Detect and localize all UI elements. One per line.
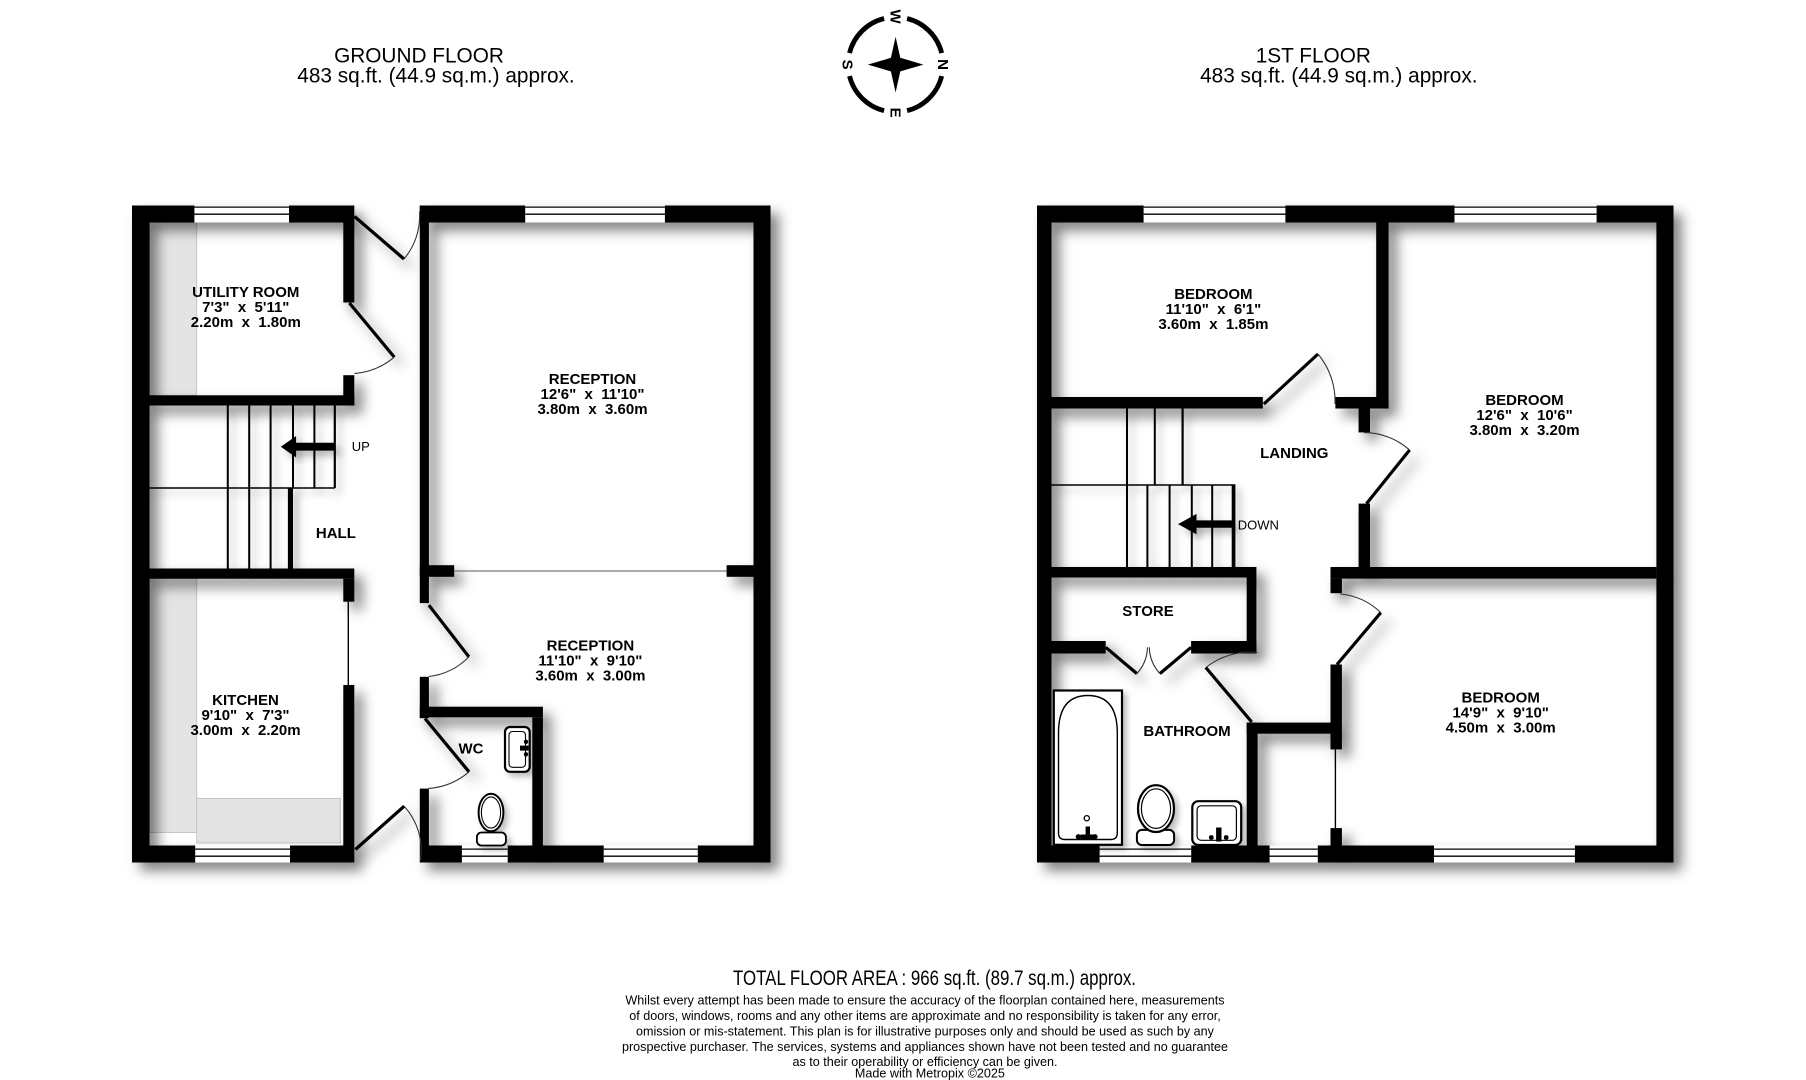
svg-text:3.00m x 2.20m: 3.00m x 2.20m xyxy=(190,722,300,739)
svg-text:2.20m x 1.80m: 2.20m x 1.80m xyxy=(191,314,301,331)
svg-text:of doors, windows, rooms and a: of doors, windows, rooms and any other i… xyxy=(629,1009,1221,1023)
svg-text:DOWN: DOWN xyxy=(1238,518,1279,533)
svg-text:483 sq.ft. (44.9 sq.m.) approx: 483 sq.ft. (44.9 sq.m.) approx. xyxy=(1200,64,1477,87)
svg-text:HALL: HALL xyxy=(316,525,356,542)
svg-text:N: N xyxy=(934,59,951,70)
svg-text:TOTAL FLOOR AREA : 966 sq.ft.: TOTAL FLOOR AREA : 966 sq.ft. (89.7 sq.m… xyxy=(733,967,1136,990)
svg-text:S: S xyxy=(838,60,855,70)
svg-text:3.80m x 3.60m: 3.80m x 3.60m xyxy=(537,401,647,418)
svg-text:STORE: STORE xyxy=(1122,603,1173,620)
svg-text:LANDING: LANDING xyxy=(1260,445,1328,462)
svg-text:3.60m x 1.85m: 3.60m x 1.85m xyxy=(1158,316,1268,333)
svg-text:Made with Metropix ©2025: Made with Metropix ©2025 xyxy=(855,1067,1005,1080)
svg-text:omission or mis-statement. Thi: omission or mis-statement. This plan is … xyxy=(636,1024,1215,1038)
svg-text:W: W xyxy=(886,10,903,25)
svg-text:E: E xyxy=(886,108,903,118)
svg-text:3.80m x 3.20m: 3.80m x 3.20m xyxy=(1469,422,1579,439)
svg-text:4.50m x 3.00m: 4.50m x 3.00m xyxy=(1446,720,1556,737)
svg-text:BATHROOM: BATHROOM xyxy=(1143,723,1230,740)
svg-text:UP: UP xyxy=(352,439,370,454)
svg-text:prospective purchaser. The ser: prospective purchaser. The services, sys… xyxy=(622,1040,1228,1054)
svg-text:Whilst every attempt has been: Whilst every attempt has been made to en… xyxy=(625,994,1224,1008)
svg-text:3.60m x 3.00m: 3.60m x 3.00m xyxy=(535,668,645,685)
svg-text:WC: WC xyxy=(459,741,484,758)
svg-text:483 sq.ft. (44.9 sq.m.) approx: 483 sq.ft. (44.9 sq.m.) approx. xyxy=(297,64,574,87)
